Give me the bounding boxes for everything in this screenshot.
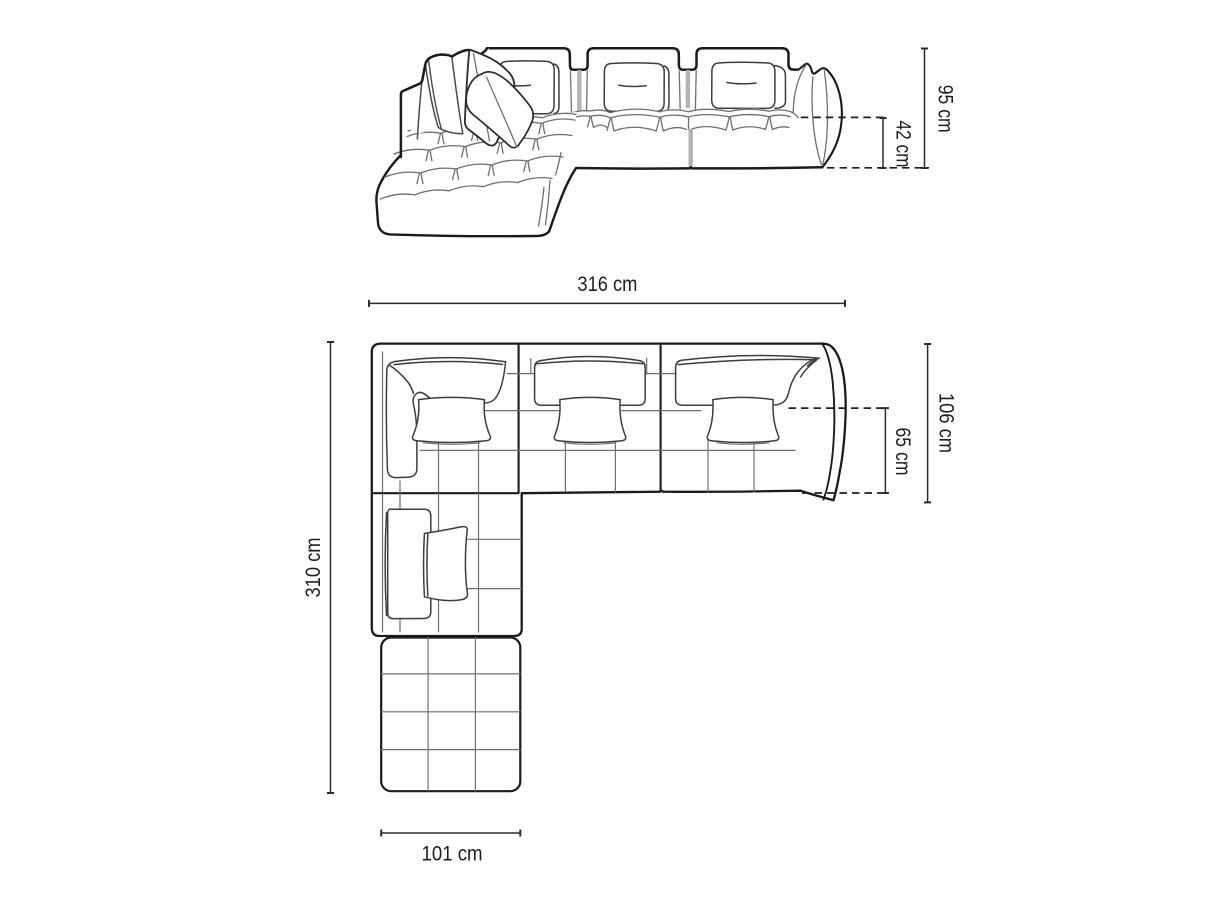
svg-text:65 cm: 65 cm xyxy=(891,428,914,476)
svg-text:316 cm: 316 cm xyxy=(577,273,637,296)
svg-text:310 cm: 310 cm xyxy=(302,538,325,598)
svg-text:101 cm: 101 cm xyxy=(422,843,483,866)
svg-text:42 cm: 42 cm xyxy=(891,121,914,168)
svg-text:106 cm: 106 cm xyxy=(935,393,958,453)
svg-text:95 cm: 95 cm xyxy=(934,85,957,133)
